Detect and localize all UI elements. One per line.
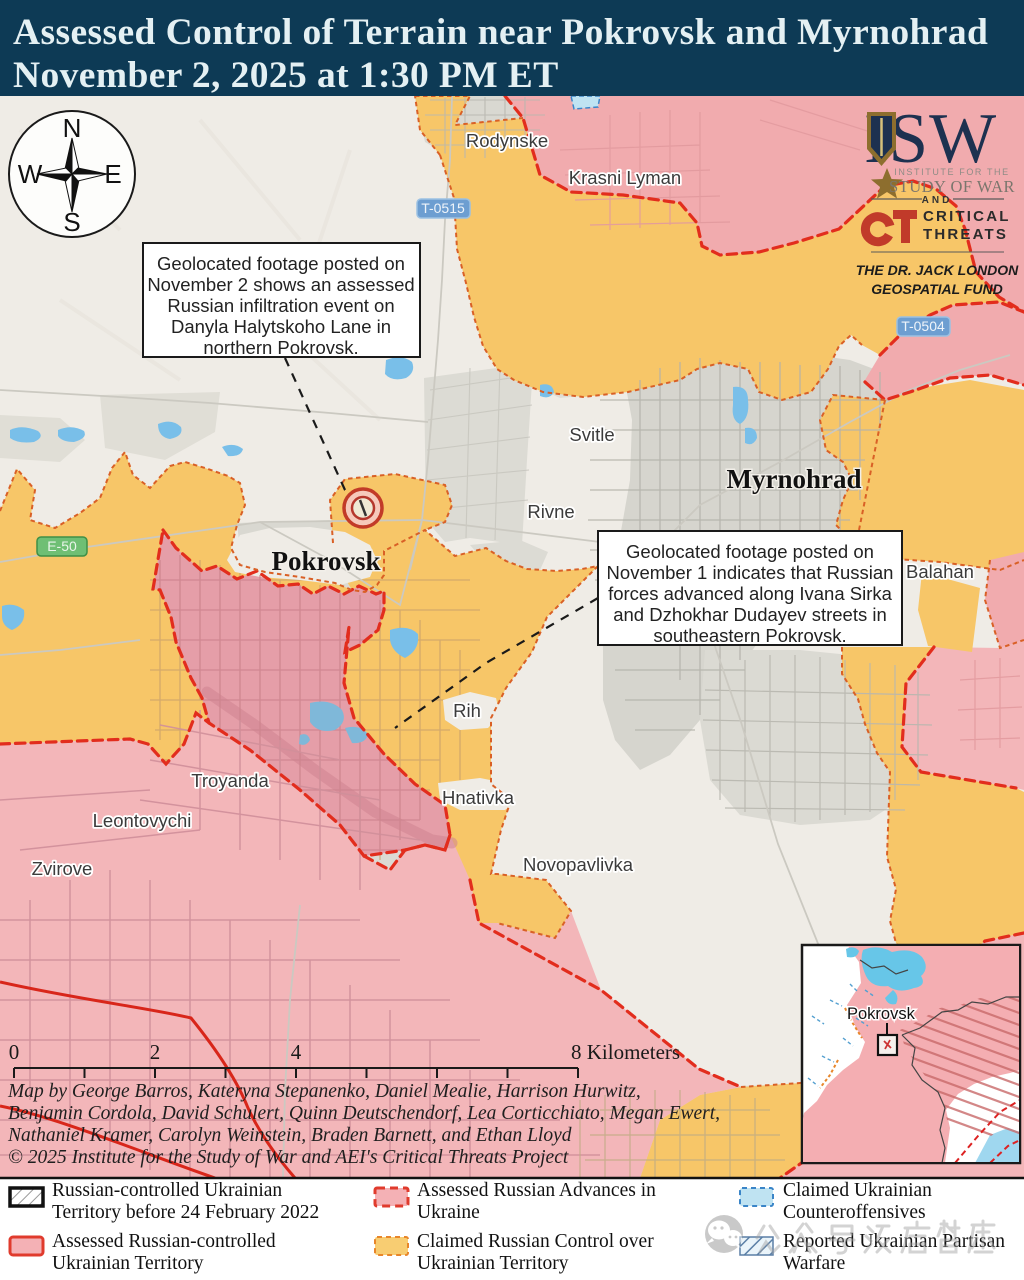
svg-text:STUDY OF WAR: STUDY OF WAR xyxy=(889,177,1015,196)
svg-text:GEOSPATIAL FUND: GEOSPATIAL FUND xyxy=(871,281,1002,297)
svg-text:Svitle: Svitle xyxy=(569,424,614,445)
svg-text:© 2025 Institute for the Study: © 2025 Institute for the Study of War an… xyxy=(8,1147,569,1168)
svg-text:Rivne: Rivne xyxy=(527,501,574,522)
svg-text:THREATS: THREATS xyxy=(923,226,1008,243)
svg-text:Ukraine: Ukraine xyxy=(417,1202,480,1223)
svg-text:CRITICAL: CRITICAL xyxy=(923,208,1011,225)
svg-text:Rodynske: Rodynske xyxy=(466,130,548,151)
svg-text:Balahan: Balahan xyxy=(906,561,974,582)
svg-text:November 1 indicates that Russ: November 1 indicates that Russian xyxy=(607,562,894,583)
svg-text:Map by George Barros, Kateryna: Map by George Barros, Kateryna Stepanenk… xyxy=(7,1081,641,1102)
svg-text:THE DR. JACK LONDON: THE DR. JACK LONDON xyxy=(856,262,1019,278)
svg-text:INSTITUTE FOR THE: INSTITUTE FOR THE xyxy=(894,167,1010,177)
svg-text:Zvirove: Zvirove xyxy=(32,858,93,879)
svg-text:northern Pokrovsk.: northern Pokrovsk. xyxy=(203,337,358,358)
svg-text:Pokrovsk: Pokrovsk xyxy=(847,1005,916,1023)
svg-text:W: W xyxy=(18,159,43,189)
svg-text:Hnativka: Hnativka xyxy=(442,787,515,808)
svg-text:Myrnohrad: Myrnohrad xyxy=(727,464,862,494)
svg-text:November 2 shows an assessed: November 2 shows an assessed xyxy=(147,274,414,295)
svg-text:November 2, 2025 at 1:30 PM ET: November 2, 2025 at 1:30 PM ET xyxy=(13,55,559,96)
svg-text:S: S xyxy=(63,207,80,237)
svg-text:8 Kilometers: 8 Kilometers xyxy=(571,1040,680,1064)
svg-text:Ukrainian Territory: Ukrainian Territory xyxy=(417,1253,569,1274)
svg-text:N: N xyxy=(63,113,82,143)
svg-text:T-0515: T-0515 xyxy=(421,200,465,216)
svg-text:Claimed Ukrainian: Claimed Ukrainian xyxy=(783,1180,932,1201)
svg-text:Assessed Control of Terrain ne: Assessed Control of Terrain near Pokrovs… xyxy=(13,12,988,53)
svg-text:southeastern Pokrovsk.: southeastern Pokrovsk. xyxy=(653,625,846,646)
svg-text:Russian infiltration event on: Russian infiltration event on xyxy=(167,295,394,316)
svg-text:and Dzhokhar Dudayev streets i: and Dzhokhar Dudayev streets in xyxy=(613,604,887,625)
svg-text:0: 0 xyxy=(9,1040,20,1064)
svg-text:E: E xyxy=(104,159,121,189)
svg-text:Assessed Russian Advances in: Assessed Russian Advances in xyxy=(417,1180,656,1201)
svg-text:Claimed Russian Control over: Claimed Russian Control over xyxy=(417,1231,654,1252)
svg-text:E-50: E-50 xyxy=(47,538,77,554)
svg-text:Krasni Lyman: Krasni Lyman xyxy=(569,167,681,188)
svg-text:Territory before 24 February 2: Territory before 24 February 2022 xyxy=(52,1202,319,1223)
svg-text:Troyanda: Troyanda xyxy=(191,770,269,791)
svg-text:2: 2 xyxy=(150,1040,161,1064)
svg-text:Assessed Russian-controlled: Assessed Russian-controlled xyxy=(52,1231,276,1252)
svg-text:Danyla Halytskoho Lane in: Danyla Halytskoho Lane in xyxy=(171,316,391,337)
svg-text:AND: AND xyxy=(922,195,953,206)
svg-text:Ukrainian Territory: Ukrainian Territory xyxy=(52,1253,204,1274)
svg-text:Warfare: Warfare xyxy=(783,1253,845,1274)
svg-text:T-0504: T-0504 xyxy=(901,318,945,334)
svg-text:Novopavlivka: Novopavlivka xyxy=(523,854,634,875)
svg-text:Geolocated footage posted on: Geolocated footage posted on xyxy=(157,253,405,274)
svg-text:4: 4 xyxy=(291,1040,302,1064)
svg-text:Counteroffensives: Counteroffensives xyxy=(783,1202,926,1223)
svg-text:Benjamin Cordola, David Schule: Benjamin Cordola, David Schulert, Quinn … xyxy=(8,1103,720,1124)
svg-text:Leontovychi: Leontovychi xyxy=(93,810,192,831)
svg-text:Rih: Rih xyxy=(453,700,481,721)
svg-text:Pokrovsk: Pokrovsk xyxy=(271,546,380,576)
svg-text:Nathaniel Kramer, Carolyn Wein: Nathaniel Kramer, Carolyn Weinstein, Bra… xyxy=(7,1125,572,1146)
svg-text:Geolocated footage posted on: Geolocated footage posted on xyxy=(626,541,874,562)
svg-text:forces advanced along Ivana Si: forces advanced along Ivana Sirka xyxy=(608,583,893,604)
svg-text:Russian-controlled Ukrainian: Russian-controlled Ukrainian xyxy=(52,1180,282,1201)
